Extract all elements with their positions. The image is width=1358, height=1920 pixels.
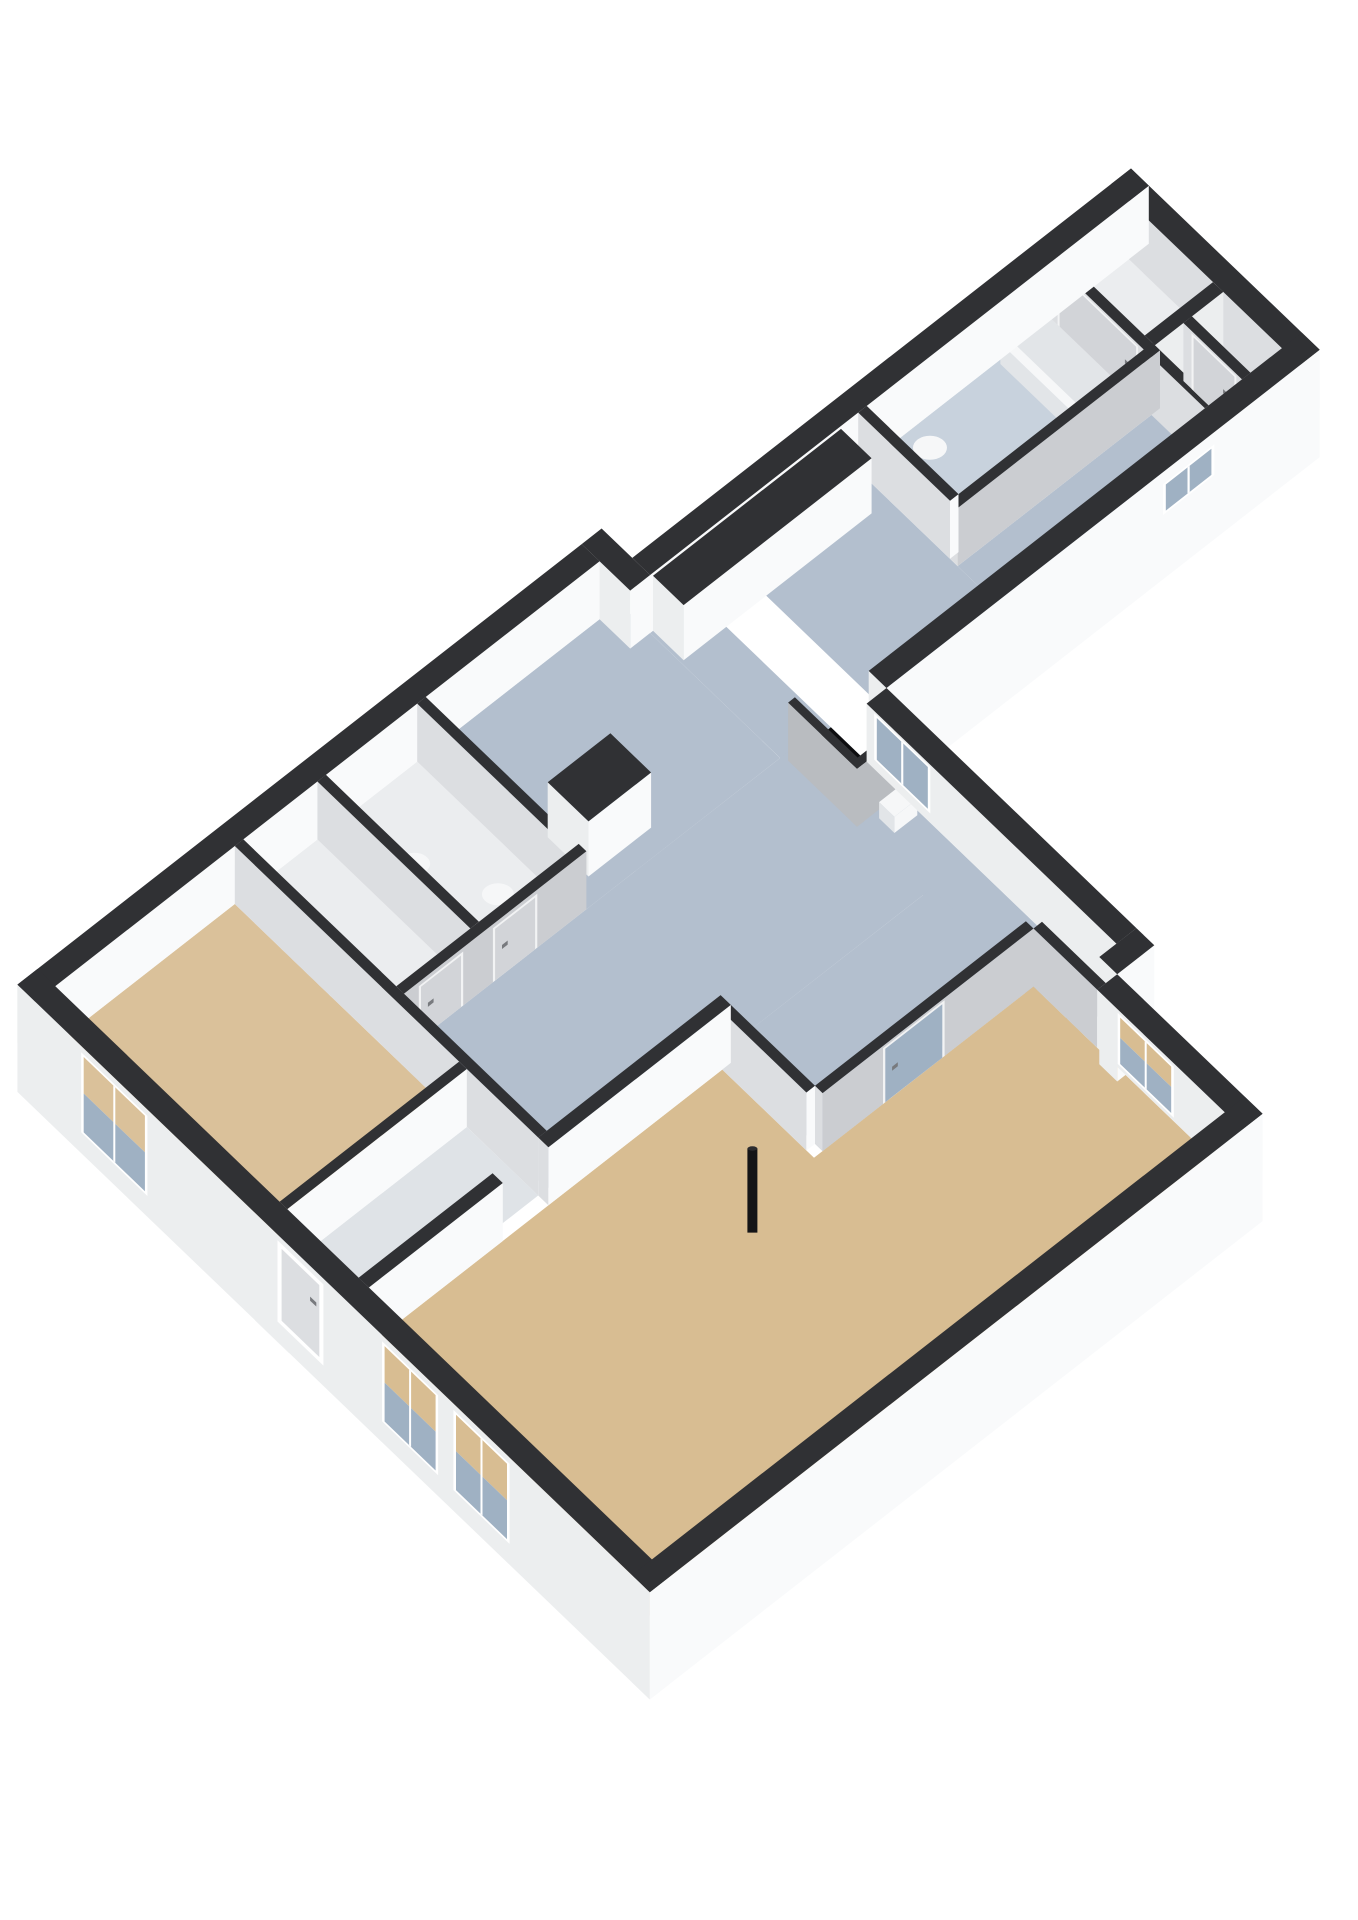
- window-living-sw-1-mullion: [409, 1370, 411, 1447]
- window-living-sw-2-mullion: [481, 1438, 483, 1515]
- flue-pipe: [747, 1146, 757, 1232]
- window-living-ne-mullion: [1145, 1041, 1147, 1089]
- window-bedroom-bay-mullion: [113, 1085, 115, 1162]
- floor-plan-svg: [0, 0, 1358, 1920]
- floor-plan-3d-render: [0, 0, 1358, 1920]
- window-hall-ne-mullion: [901, 742, 903, 786]
- window-wing-se-mullion: [1188, 466, 1190, 494]
